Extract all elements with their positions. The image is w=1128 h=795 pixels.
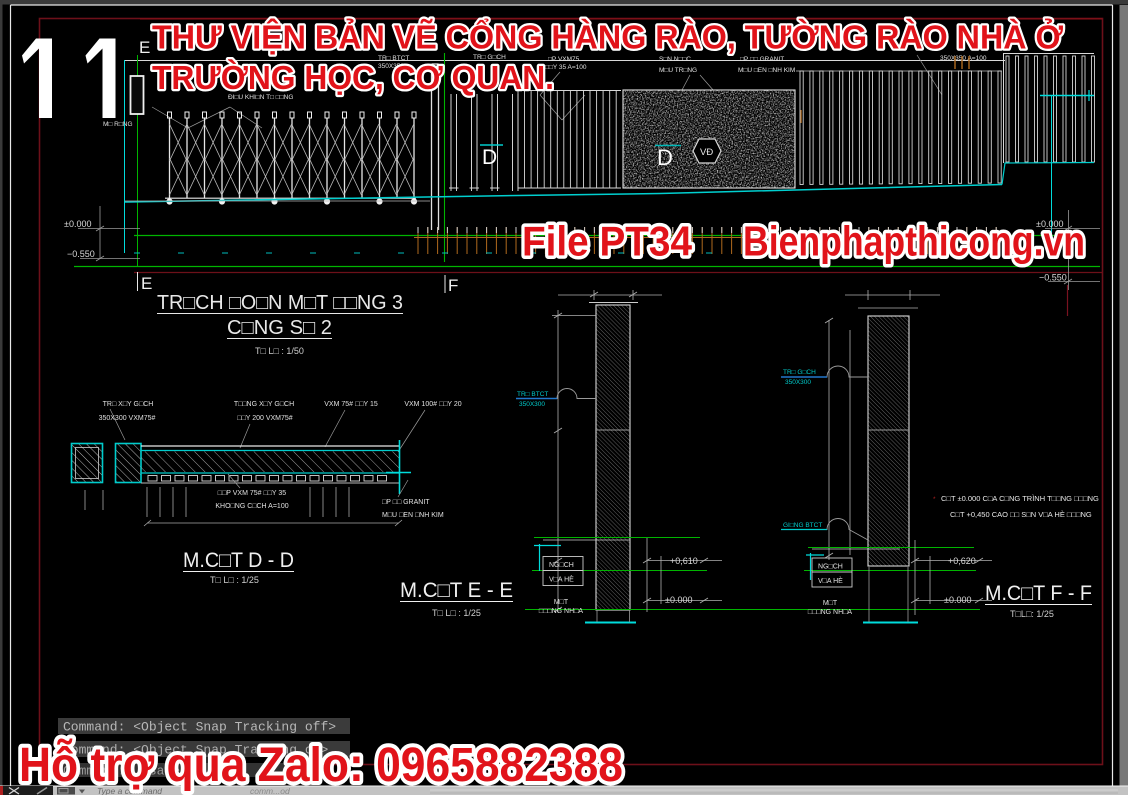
svg-text:T□ L□ : 1/25: T□ L□ : 1/25 <box>210 575 259 585</box>
svg-text:−0.550: −0.550 <box>1039 273 1067 283</box>
svg-text:M□U □EN □NH KIM: M□U □EN □NH KIM <box>738 67 795 74</box>
svg-text:±0.000: ±0.000 <box>665 595 692 605</box>
svg-text:TRƯỜNG HỌC, CƠ QUAN.: TRƯỜNG HỌC, CƠ QUAN. <box>152 59 554 96</box>
svg-text:+0,620: +0,620 <box>948 556 976 566</box>
svg-text:M□ R□NG: M□ R□NG <box>103 121 133 128</box>
svg-text:M.C□T E - E: M.C□T E - E <box>400 579 513 602</box>
svg-text:E: E <box>141 274 152 293</box>
svg-text:C□T +0,450 CAO □□ S□N V□A HÈ □: C□T +0,450 CAO □□ S□N V□A HÈ □□□NG <box>950 510 1092 519</box>
svg-text:F: F <box>448 276 458 295</box>
svg-text:±0.000: ±0.000 <box>64 219 91 229</box>
svg-text:□□□NG NH□A: □□□NG NH□A <box>539 608 583 615</box>
svg-text:NG□CH: NG□CH <box>818 564 843 571</box>
svg-text:D: D <box>482 146 497 169</box>
svg-text:M.C□T D - D: M.C□T D - D <box>183 549 294 572</box>
svg-text:VĐ: VĐ <box>700 147 713 158</box>
svg-text:T□L□: 1/25: T□L□: 1/25 <box>1010 609 1054 619</box>
svg-text:E: E <box>139 38 150 57</box>
svg-text:M□U TR□NG: M□U TR□NG <box>659 67 697 74</box>
svg-text:+0,610: +0,610 <box>670 556 698 566</box>
svg-text:V□A HÈ: V□A HÈ <box>818 576 843 585</box>
svg-text:350X300 VXM75#: 350X300 VXM75# <box>99 415 156 422</box>
svg-text:D: D <box>657 145 673 170</box>
svg-text:TR□ G□CH: TR□ G□CH <box>783 369 816 376</box>
svg-text:GI□NG BTCT: GI□NG BTCT <box>783 522 822 529</box>
svg-text:−0.550: −0.550 <box>67 249 95 259</box>
svg-text:NG□CH: NG□CH <box>549 562 574 569</box>
svg-text:T□□NG X□Y G□CH: T□□NG X□Y G□CH <box>234 401 294 408</box>
svg-text:TR□ X□Y G□CH: TR□ X□Y G□CH <box>103 401 154 408</box>
svg-text:VXM 75# □□Y 15: VXM 75# □□Y 15 <box>324 401 378 408</box>
svg-text:□□Y 200 VXM75#: □□Y 200 VXM75# <box>237 415 293 422</box>
svg-text:C□T ±0.000 C□A C□NG TRÌNH T□□: C□T ±0.000 C□A C□NG TRÌNH T□□NG □□□NG <box>941 494 1099 503</box>
svg-text:M□U □EN □NH KIM: M□U □EN □NH KIM <box>382 512 444 519</box>
svg-text:Hỗ trợ qua Zalo: 0965882388: Hỗ trợ qua Zalo: 0965882388 <box>19 738 623 792</box>
svg-text:□□P VXM 75# □□Y 35: □□P VXM 75# □□Y 35 <box>218 490 287 497</box>
svg-text:M□T: M□T <box>823 600 838 607</box>
svg-text:TR□ BTCT: TR□ BTCT <box>517 391 548 398</box>
svg-text:□□□NG NH□A: □□□NG NH□A <box>808 609 852 616</box>
svg-text:M.C□T F - F: M.C□T F - F <box>985 582 1092 605</box>
svg-text:M□T: M□T <box>554 599 569 606</box>
svg-text:350X300: 350X300 <box>785 379 811 386</box>
svg-text:□P □□ GRANIT: □P □□ GRANIT <box>382 499 430 506</box>
svg-text:350X300: 350X300 <box>519 401 545 408</box>
svg-text:VXM 100# □□Y 20: VXM 100# □□Y 20 <box>404 401 461 408</box>
svg-text:±0.000: ±0.000 <box>944 595 971 605</box>
svg-text:THƯ VIỆN BẢN VẼ CỔNG HÀNG RÀO,: THƯ VIỆN BẢN VẼ CỔNG HÀNG RÀO, TƯỜNG RÀO… <box>152 19 1064 56</box>
svg-text:Bienphapthicong.vn: Bienphapthicong.vn <box>743 218 1085 265</box>
svg-text:T□ L□ : 1/50: T□ L□ : 1/50 <box>255 346 304 356</box>
svg-text:C□NG S□ 2: C□NG S□ 2 <box>227 317 332 339</box>
svg-text:□P □□ GRANIT: □P □□ GRANIT <box>740 56 784 63</box>
svg-text:TR□CH □O□N M□T □□NG 3: TR□CH □O□N M□T □□NG 3 <box>157 292 403 314</box>
svg-text:S□N N□□C: S□N N□□C <box>659 56 691 63</box>
svg-text:V□A HÈ: V□A HÈ <box>549 575 574 584</box>
svg-text:Command: <Object Snap Tracking: Command: <Object Snap Tracking off> <box>63 720 336 735</box>
svg-text:350X350 A=100: 350X350 A=100 <box>940 55 987 62</box>
svg-text:KHO□NG C□CH A=100: KHO□NG C□CH A=100 <box>215 503 288 510</box>
svg-text:File PT34: File PT34 <box>522 218 693 265</box>
svg-text:T□ L□ : 1/25: T□ L□ : 1/25 <box>432 608 481 618</box>
